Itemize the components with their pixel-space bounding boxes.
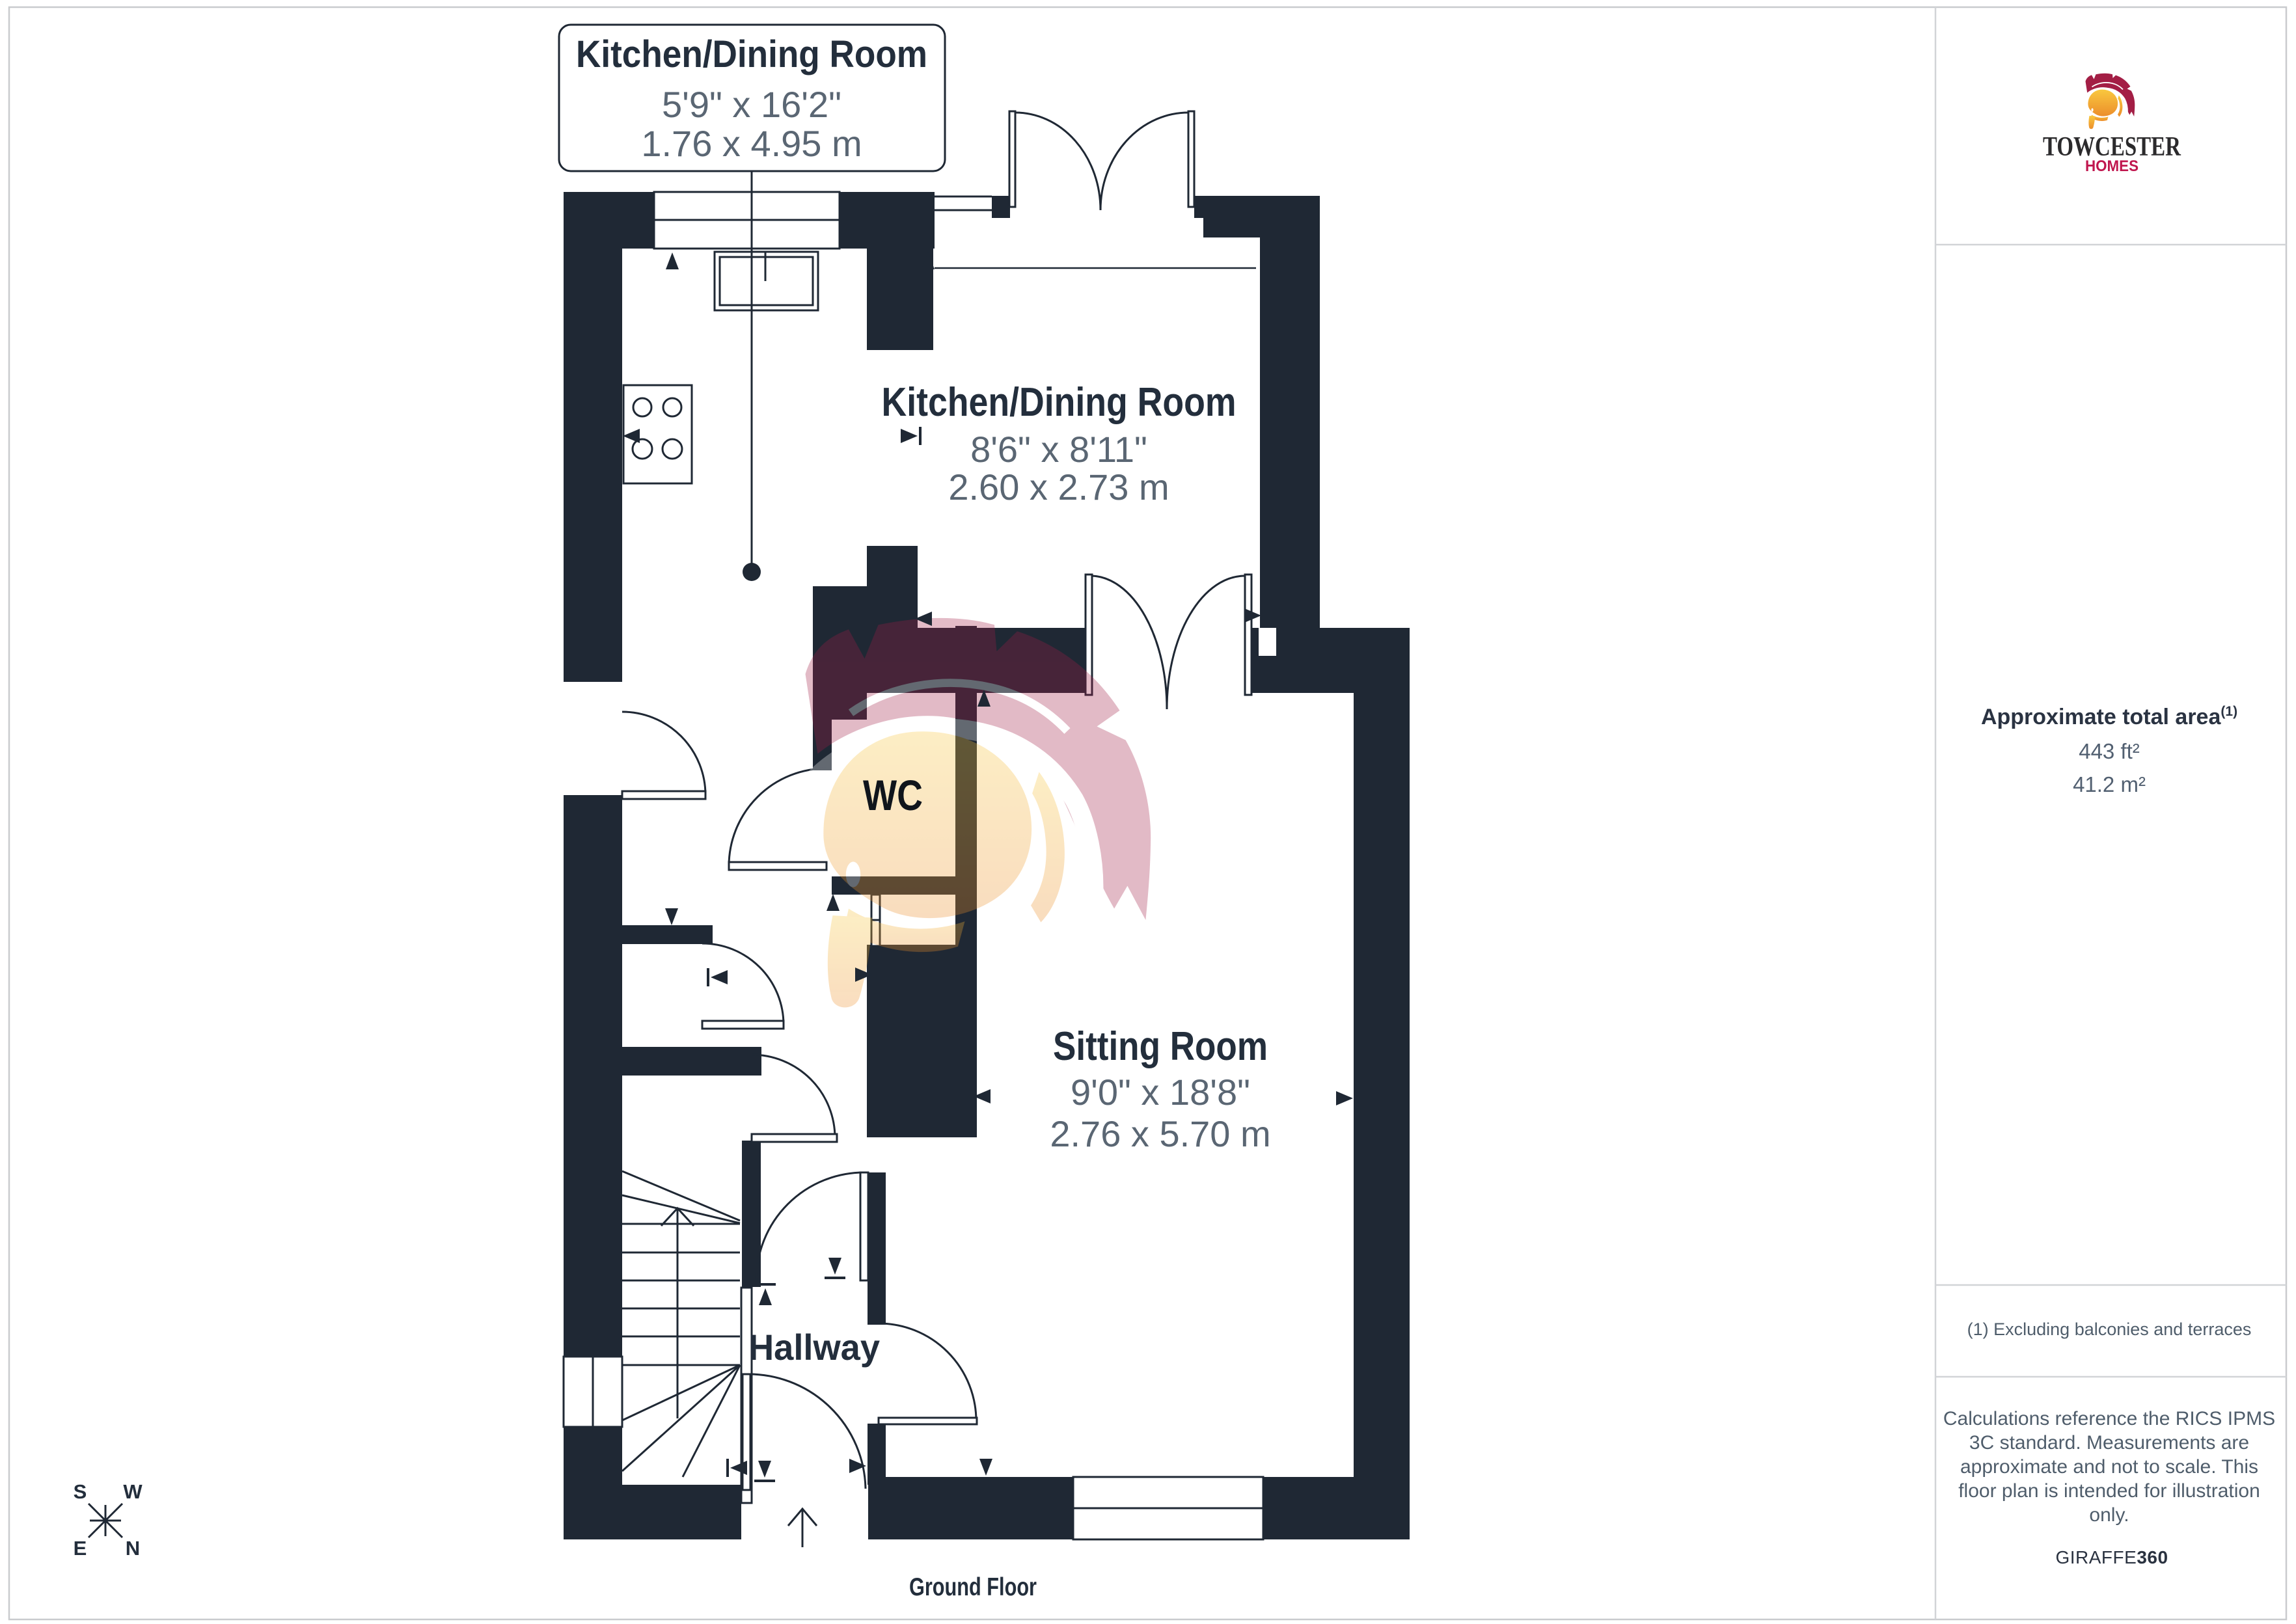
svg-text:Hallway: Hallway [748,1327,880,1368]
svg-text:41.2 m²: 41.2 m² [2073,772,2146,796]
svg-text:E: E [74,1537,87,1560]
svg-text:Kitchen/Dining Room: Kitchen/Dining Room [576,33,927,75]
svg-text:Kitchen/Dining Room: Kitchen/Dining Room [882,380,1237,425]
svg-text:8'6" x 8'11": 8'6" x 8'11" [970,429,1147,470]
svg-text:W: W [123,1480,143,1503]
svg-text:2.60 x 2.73 m: 2.60 x 2.73 m [948,467,1169,507]
svg-text:WC: WC [863,771,923,819]
svg-text:approximate and not to scale.: approximate and not to scale. This [1960,1456,2258,1478]
svg-text:9'0" x 18'8": 9'0" x 18'8" [1071,1072,1250,1113]
svg-text:5'9" x 16'2": 5'9" x 16'2" [662,84,841,125]
svg-text:Approximate total area(1): Approximate total area(1) [1981,704,2237,729]
svg-text:3C standard. Measurements are: 3C standard. Measurements are [1969,1432,2249,1454]
svg-text:1.76 x 4.95 m: 1.76 x 4.95 m [641,123,862,164]
svg-text:Sitting Room: Sitting Room [1053,1024,1268,1069]
svg-text:floor plan is intended for ill: floor plan is intended for illustration [1958,1480,2260,1502]
svg-text:GIRAFFE360: GIRAFFE360 [2055,1547,2168,1567]
svg-text:HOMES: HOMES [2085,157,2139,175]
svg-text:443 ft²: 443 ft² [2079,739,2140,763]
svg-text:N: N [126,1537,140,1560]
svg-text:only.: only. [2089,1504,2129,1526]
svg-text:(1) Excluding balconies and te: (1) Excluding balconies and terraces [1967,1319,2252,1339]
svg-text:Ground Floor: Ground Floor [909,1573,1037,1601]
svg-text:2.76 x 5.70 m: 2.76 x 5.70 m [1050,1113,1270,1154]
svg-text:Calculations reference the RIC: Calculations reference the RICS IPMS [1943,1408,2275,1429]
svg-text:S: S [74,1480,87,1503]
